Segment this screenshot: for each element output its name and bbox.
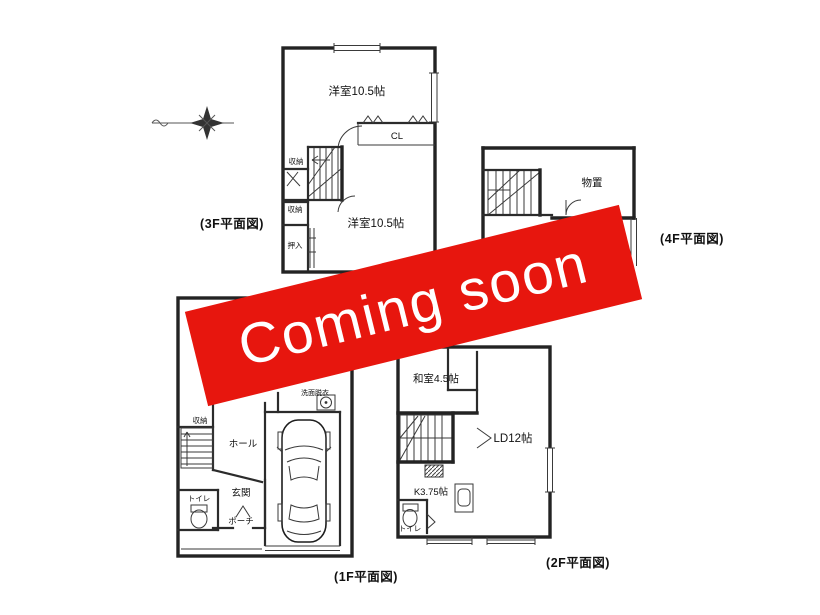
room-label: 洋室10.5帖	[329, 84, 386, 98]
door-mark	[477, 428, 491, 448]
entrance-label: 玄関	[231, 487, 250, 499]
porch-label: ポーチ	[228, 516, 254, 526]
closet-label: CL	[391, 131, 403, 142]
counter-icon	[425, 465, 443, 477]
stairs-1f-icon	[181, 428, 213, 468]
plan-2f-caption: (2F平面図)	[546, 556, 610, 570]
oshiire-label: 押入	[288, 240, 303, 250]
toilet-icon	[191, 505, 207, 528]
plan-1f-caption: (1F平面図)	[334, 570, 398, 584]
storage-label: 収納	[288, 204, 303, 214]
car-icon	[277, 420, 331, 542]
toilet-label: トイレ	[188, 494, 211, 503]
stairs-3f-icon	[308, 147, 342, 200]
floor-plan-sheet: 洋室10.5帖 CL 収納 収納 押入 洋室10.5帖 (3F平面図)	[0, 0, 820, 615]
room-label: 洋室10.5帖	[348, 216, 405, 230]
toilet-label: トイレ	[399, 524, 422, 533]
hall-label: ホール	[229, 439, 258, 450]
storage-label: 収納	[193, 415, 208, 425]
japanese-room-label: 和室4.5帖	[413, 372, 460, 385]
compass-north-icon	[152, 106, 234, 140]
kitchen-label: K3.75帖	[414, 486, 449, 498]
storeroom-label: 物置	[582, 176, 603, 189]
stairs-4f-icon	[488, 170, 540, 215]
sink-icon	[455, 484, 473, 512]
ld-label: LD12帖	[494, 431, 533, 445]
plan-4f-caption: (4F平面図)	[660, 232, 724, 246]
washing-machine-icon	[317, 395, 335, 410]
storage-label: 収納	[289, 156, 304, 166]
plan-3f: 洋室10.5帖 CL 収納 収納 押入 洋室10.5帖 (3F平面図)	[200, 43, 440, 272]
plan-3f-caption: (3F平面図)	[200, 217, 264, 231]
stairs-2f-icon	[400, 415, 453, 462]
plan-2f: 和室4.5帖 LD12帖 K3.75帖 トイレ (2F平面図)	[398, 347, 610, 570]
door-arc	[566, 200, 581, 215]
washroom-label: 洗面脱衣	[301, 388, 329, 397]
